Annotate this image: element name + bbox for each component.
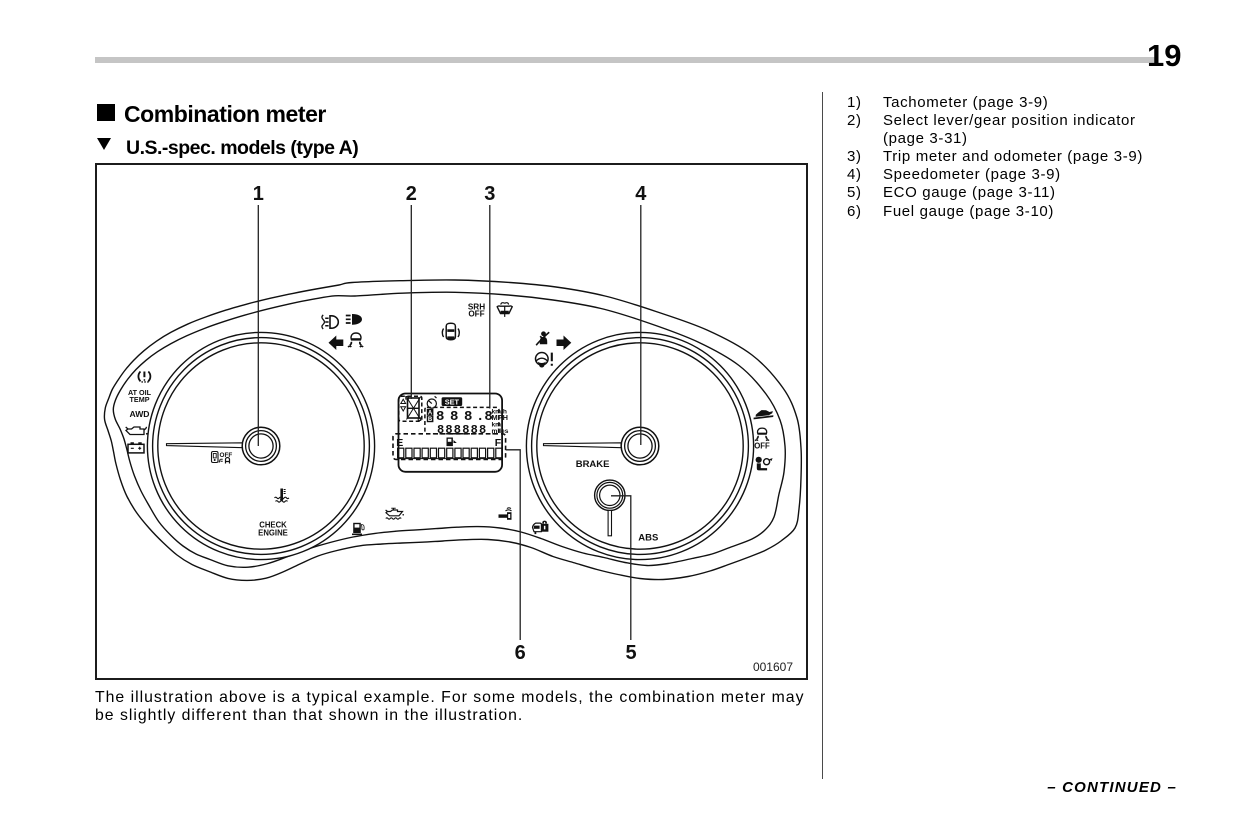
svg-text:BRAKE: BRAKE xyxy=(576,459,610,470)
svg-text:OFF: OFF xyxy=(468,310,484,319)
svg-text:TEMP: TEMP xyxy=(129,395,149,404)
svg-text:B: B xyxy=(428,417,433,423)
svg-text:F: F xyxy=(495,437,502,449)
svg-text:4: 4 xyxy=(635,183,647,205)
svg-text:001607: 001607 xyxy=(753,660,793,674)
svg-text:ABS: ABS xyxy=(638,532,658,543)
svg-text:6: 6 xyxy=(515,642,526,664)
svg-text:OFF: OFF xyxy=(754,442,770,451)
svg-text:SET: SET xyxy=(445,397,460,406)
svg-text:A: A xyxy=(428,410,433,416)
svg-text:ENGINE: ENGINE xyxy=(258,528,288,537)
svg-text:2: 2 xyxy=(406,183,417,205)
svg-text:3: 3 xyxy=(484,183,495,205)
svg-text:888888: 888888 xyxy=(437,423,487,437)
svg-text:AWD: AWD xyxy=(129,409,149,419)
svg-text:E: E xyxy=(396,437,403,449)
svg-text:1: 1 xyxy=(253,183,264,205)
svg-text:5: 5 xyxy=(625,642,636,664)
